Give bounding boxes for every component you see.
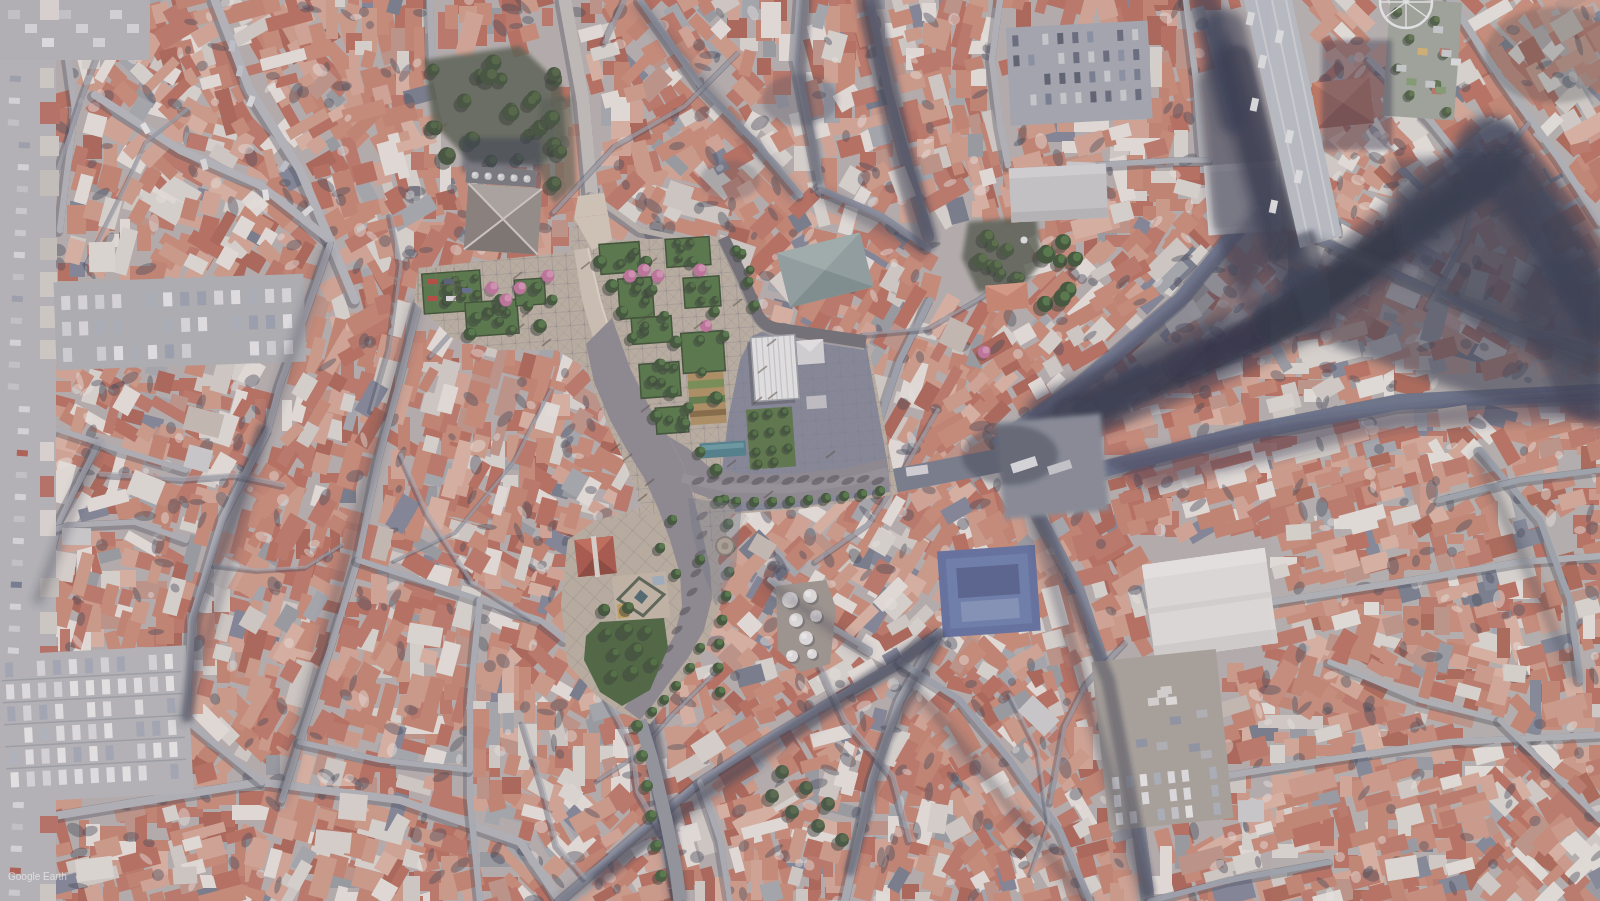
svg-text:Google Earth: Google Earth xyxy=(8,871,67,882)
